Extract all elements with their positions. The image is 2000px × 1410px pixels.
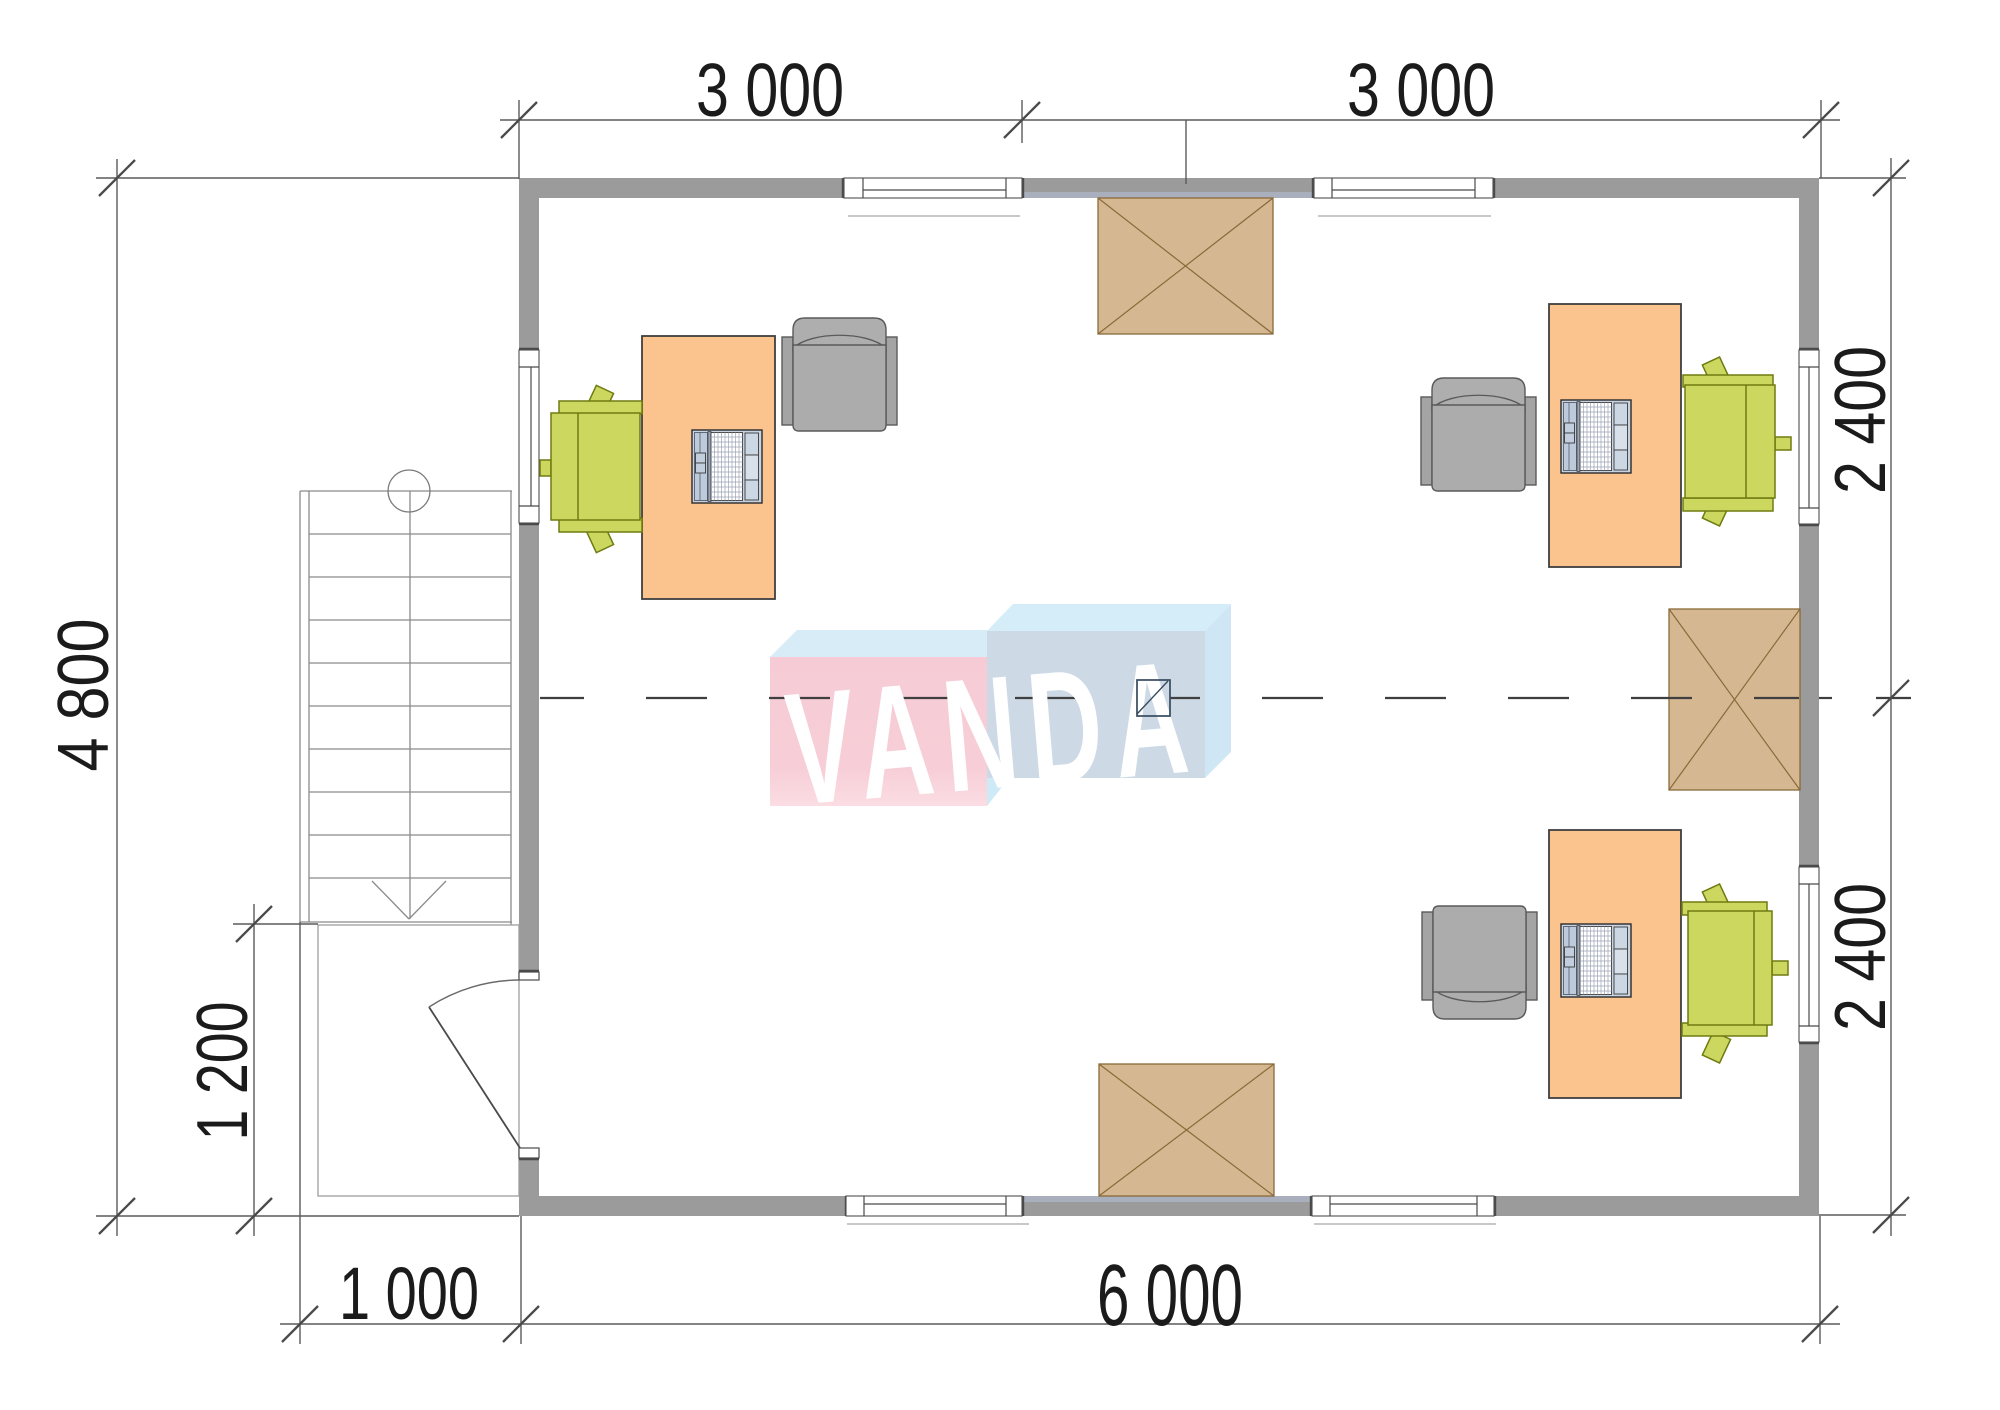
svg-text:3 000: 3 000 bbox=[696, 48, 844, 132]
svg-text:3 000: 3 000 bbox=[1347, 48, 1495, 132]
svg-text:2 400: 2 400 bbox=[1821, 346, 1901, 494]
svg-text:1 000: 1 000 bbox=[339, 1252, 479, 1335]
svg-text:2 400: 2 400 bbox=[1821, 883, 1901, 1031]
svg-text:6 000: 6 000 bbox=[1097, 1247, 1243, 1344]
svg-text:1 200: 1 200 bbox=[183, 1002, 263, 1141]
svg-text:4 800: 4 800 bbox=[44, 619, 124, 772]
svg-text:VANDA: VANDA bbox=[780, 626, 1206, 839]
